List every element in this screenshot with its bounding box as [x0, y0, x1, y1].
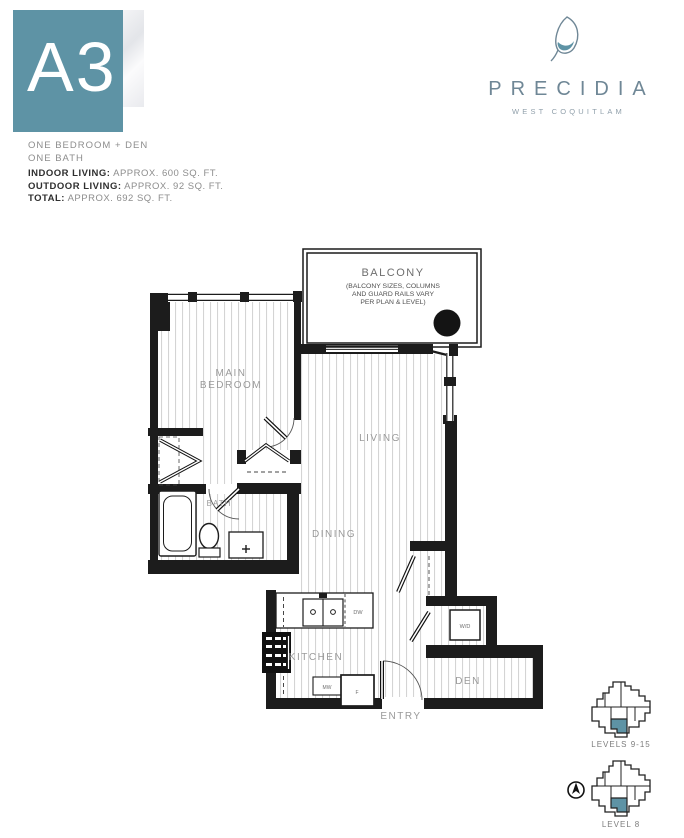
room-label-main-2: BEDROOM [200, 380, 262, 391]
keyplan-label-levels-9-15: LEVELS 9-15 [566, 740, 676, 749]
balcony-label: BALCONY [361, 267, 424, 279]
fixture-label-f: F [355, 690, 358, 696]
room-label-kitchen: KITCHEN [289, 652, 343, 663]
room-label-dining: DINING [312, 529, 356, 540]
balcony-note-2: AND GUARD RAILS VARY [352, 291, 435, 298]
fixture-label-wd: W/D [460, 624, 471, 630]
toilet [200, 524, 219, 549]
fixture-label-dw: DW [353, 610, 363, 616]
keyplan-levels-9-15 [591, 681, 651, 739]
keyplan-label-level-8: LEVEL 8 [566, 820, 676, 829]
balcony-note-1: (BALCONY SIZES, COLUMNS [346, 283, 440, 290]
fixture-label-mw: MW [323, 685, 332, 691]
balcony [303, 249, 481, 347]
room-label-den: DEN [455, 676, 481, 687]
entry-opening [382, 697, 424, 710]
room-label-bath: BATH [207, 499, 232, 508]
room-label-entry: ENTRY [380, 711, 421, 722]
room-label-main-1: MAIN [216, 368, 247, 379]
floorplan-drawing: BALCONY (BALCONY SIZES, COLUMNS AND GUAR… [0, 0, 684, 838]
balcony-note-3: PER PLAN & LEVEL) [360, 299, 425, 306]
north-arrow-icon [566, 780, 586, 800]
balcony-column [434, 310, 461, 337]
keyplan-level-8 [591, 760, 651, 818]
room-label-living: LIVING [359, 433, 401, 444]
floorplan-sheet: A3 ONE BEDROOM + DEN ONE BATH INDOOR LIV… [0, 0, 684, 838]
